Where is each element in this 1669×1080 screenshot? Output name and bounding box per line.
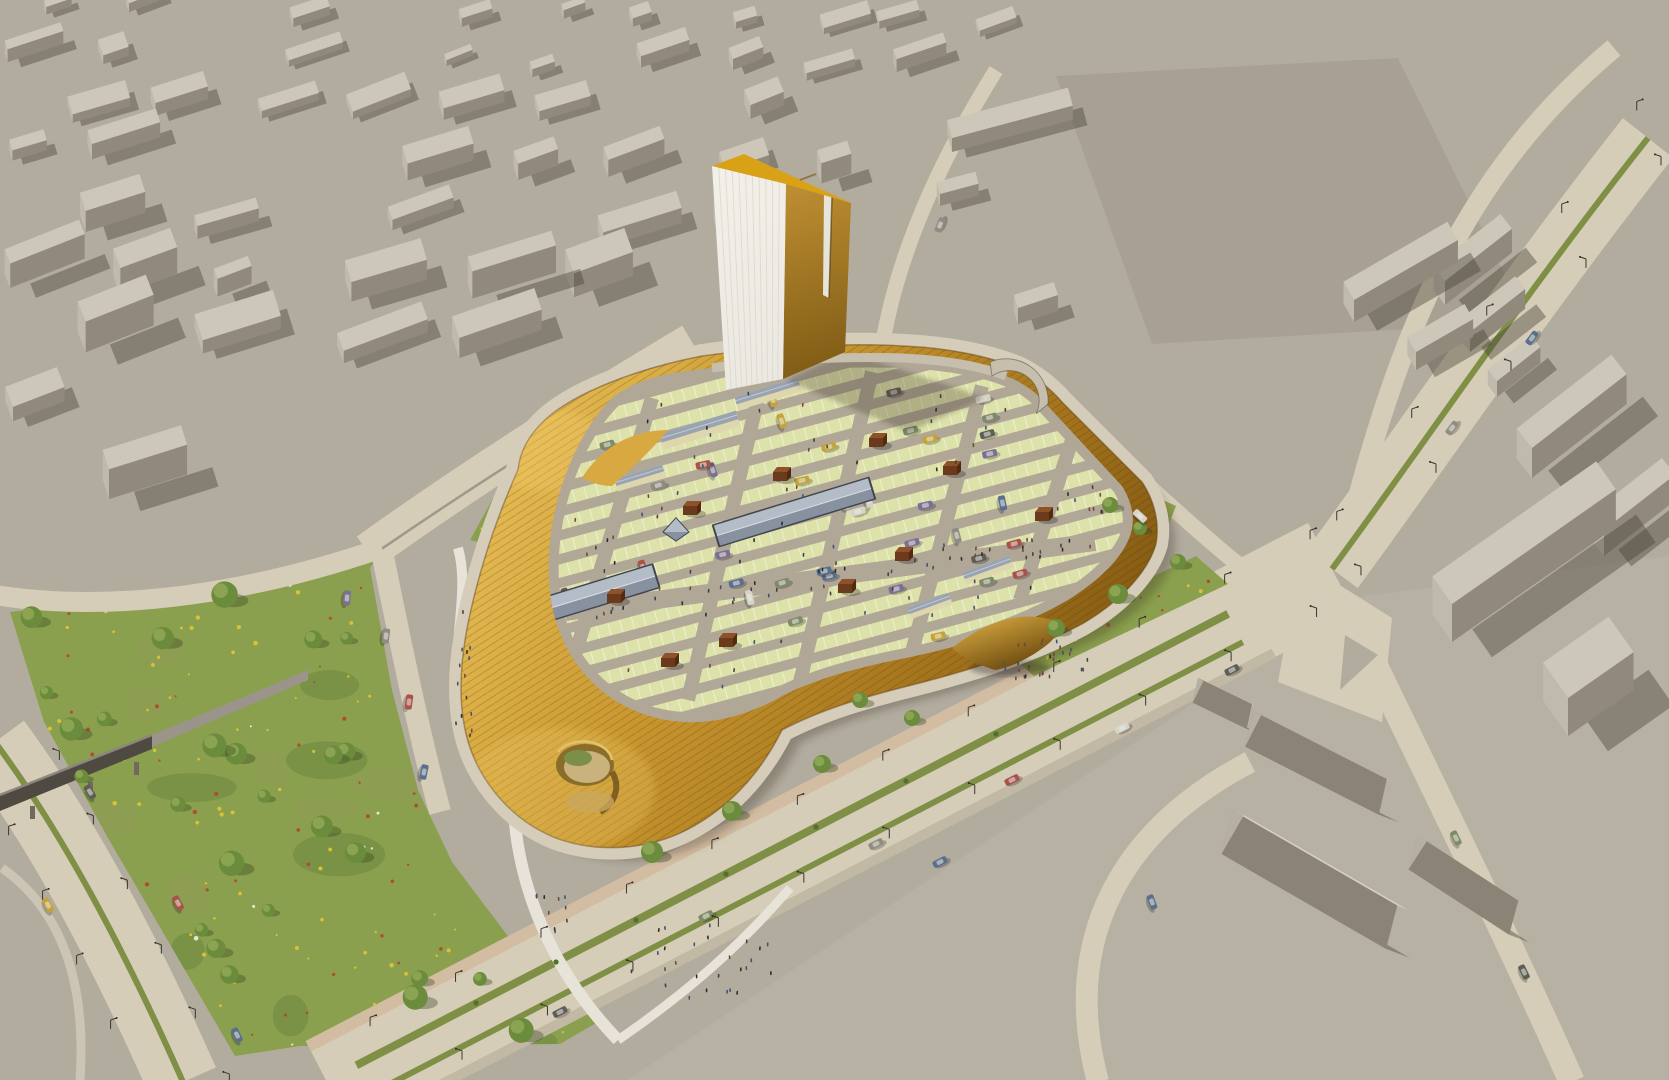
- pedestrian: [776, 588, 778, 592]
- pedestrian: [641, 512, 643, 516]
- pedestrian: [802, 494, 804, 498]
- pedestrian: [607, 538, 609, 542]
- pedestrian: [690, 570, 692, 574]
- pedestrian: [610, 610, 612, 614]
- pedestrian: [955, 460, 957, 464]
- pedestrian: [1053, 652, 1055, 656]
- pedestrian: [702, 464, 704, 468]
- pedestrian: [1017, 661, 1019, 665]
- pedestrian: [461, 714, 463, 718]
- pedestrian: [739, 560, 741, 564]
- pedestrian: [746, 939, 748, 943]
- pedestrian: [657, 951, 659, 955]
- pedestrian: [750, 587, 752, 591]
- pedestrian: [754, 581, 756, 585]
- pedestrian: [614, 561, 616, 565]
- pedestrian: [1062, 548, 1064, 552]
- pedestrian: [1099, 493, 1101, 497]
- pedestrian: [565, 906, 567, 910]
- pedestrian: [770, 971, 772, 975]
- pedestrian: [647, 419, 649, 423]
- pedestrian: [1057, 507, 1059, 511]
- pedestrian: [1049, 675, 1051, 679]
- pedestrian: [457, 682, 459, 686]
- pedestrian: [1030, 586, 1032, 590]
- pedestrian: [659, 586, 661, 590]
- pedestrian: [694, 455, 696, 459]
- pedestrian: [1025, 674, 1027, 678]
- pedestrian: [1067, 492, 1069, 496]
- pedestrian: [654, 596, 656, 600]
- median-bush: [473, 1000, 478, 1005]
- median-bush: [993, 731, 998, 736]
- pedestrian: [1024, 642, 1026, 646]
- pedestrian: [985, 426, 987, 430]
- pedestrian: [781, 521, 783, 525]
- pedestrian: [1070, 648, 1072, 652]
- aerial-rendering: [0, 0, 1669, 1080]
- pedestrian: [1026, 538, 1028, 542]
- pedestrian: [1004, 408, 1006, 412]
- pedestrian: [466, 696, 468, 700]
- pedestrian: [822, 567, 824, 571]
- median-bush: [903, 778, 908, 783]
- pedestrian: [732, 600, 734, 604]
- pedestrian: [1060, 543, 1062, 547]
- pedestrian: [813, 438, 815, 442]
- pedestrian: [729, 988, 731, 992]
- pedestrian: [1089, 545, 1091, 549]
- pedestrian: [1074, 498, 1076, 502]
- bridge-pier: [30, 806, 35, 819]
- pedestrian: [706, 988, 708, 992]
- pedestrian: [595, 546, 597, 550]
- pedestrian: [767, 942, 769, 946]
- median-bush: [633, 917, 638, 922]
- pedestrian: [834, 569, 836, 573]
- pedestrian: [1069, 652, 1071, 656]
- pedestrian: [596, 615, 598, 619]
- pedestrian: [464, 674, 466, 678]
- pedestrian: [1041, 672, 1043, 676]
- pedestrian: [786, 487, 788, 491]
- pedestrian: [536, 893, 538, 897]
- pedestrian: [1018, 643, 1020, 647]
- pedestrian: [548, 911, 550, 915]
- pedestrian: [466, 650, 468, 654]
- bridge-pier: [134, 762, 139, 775]
- pedestrian: [887, 572, 889, 576]
- pedestrian: [688, 996, 690, 1000]
- pedestrian: [604, 569, 606, 573]
- pedestrian: [1032, 552, 1034, 556]
- pedestrian: [892, 587, 894, 591]
- pedestrian: [810, 587, 812, 591]
- pedestrian: [660, 403, 662, 407]
- pedestrian: [696, 974, 698, 978]
- pedestrian: [459, 663, 461, 667]
- pedestrian: [750, 958, 752, 962]
- pedestrian: [1102, 510, 1104, 514]
- pedestrian: [564, 895, 566, 899]
- pedestrian: [943, 543, 945, 547]
- pedestrian: [706, 426, 708, 430]
- pedestrian: [612, 607, 614, 611]
- median-bush: [813, 824, 818, 829]
- pedestrian: [708, 589, 710, 593]
- pedestrian: [926, 563, 928, 567]
- pedestrian: [693, 942, 695, 946]
- pedestrian: [471, 728, 473, 732]
- median-bush: [553, 959, 558, 964]
- pedestrian: [974, 579, 976, 583]
- pedestrian: [710, 433, 712, 437]
- architectural-rendering-canvas: [0, 0, 1669, 1080]
- pedestrian: [753, 538, 755, 542]
- pedestrian: [705, 613, 707, 617]
- pedestrian: [908, 596, 910, 600]
- pedestrian: [462, 610, 464, 614]
- pedestrian: [586, 552, 588, 556]
- pedestrian: [942, 547, 944, 551]
- pedestrian: [1069, 539, 1071, 543]
- pedestrian: [631, 969, 633, 973]
- pedestrian: [1022, 548, 1024, 552]
- pedestrian: [972, 443, 974, 447]
- pedestrian: [1015, 676, 1017, 680]
- pedestrian: [722, 685, 724, 689]
- tower-gold-face: [783, 184, 851, 379]
- pedestrian: [931, 613, 933, 617]
- pedestrian: [543, 895, 545, 899]
- pedestrian: [664, 926, 666, 930]
- pedestrian: [612, 535, 614, 539]
- pedestrian: [740, 967, 742, 971]
- pedestrian: [1087, 658, 1089, 662]
- pedestrian: [1053, 657, 1055, 661]
- pedestrian: [709, 923, 711, 927]
- pedestrian: [709, 664, 711, 668]
- pedestrian: [1081, 667, 1083, 671]
- pedestrian: [469, 646, 471, 650]
- median-bush: [723, 871, 728, 876]
- pedestrian: [661, 506, 663, 510]
- pedestrian: [1049, 654, 1051, 658]
- pedestrian: [844, 567, 846, 571]
